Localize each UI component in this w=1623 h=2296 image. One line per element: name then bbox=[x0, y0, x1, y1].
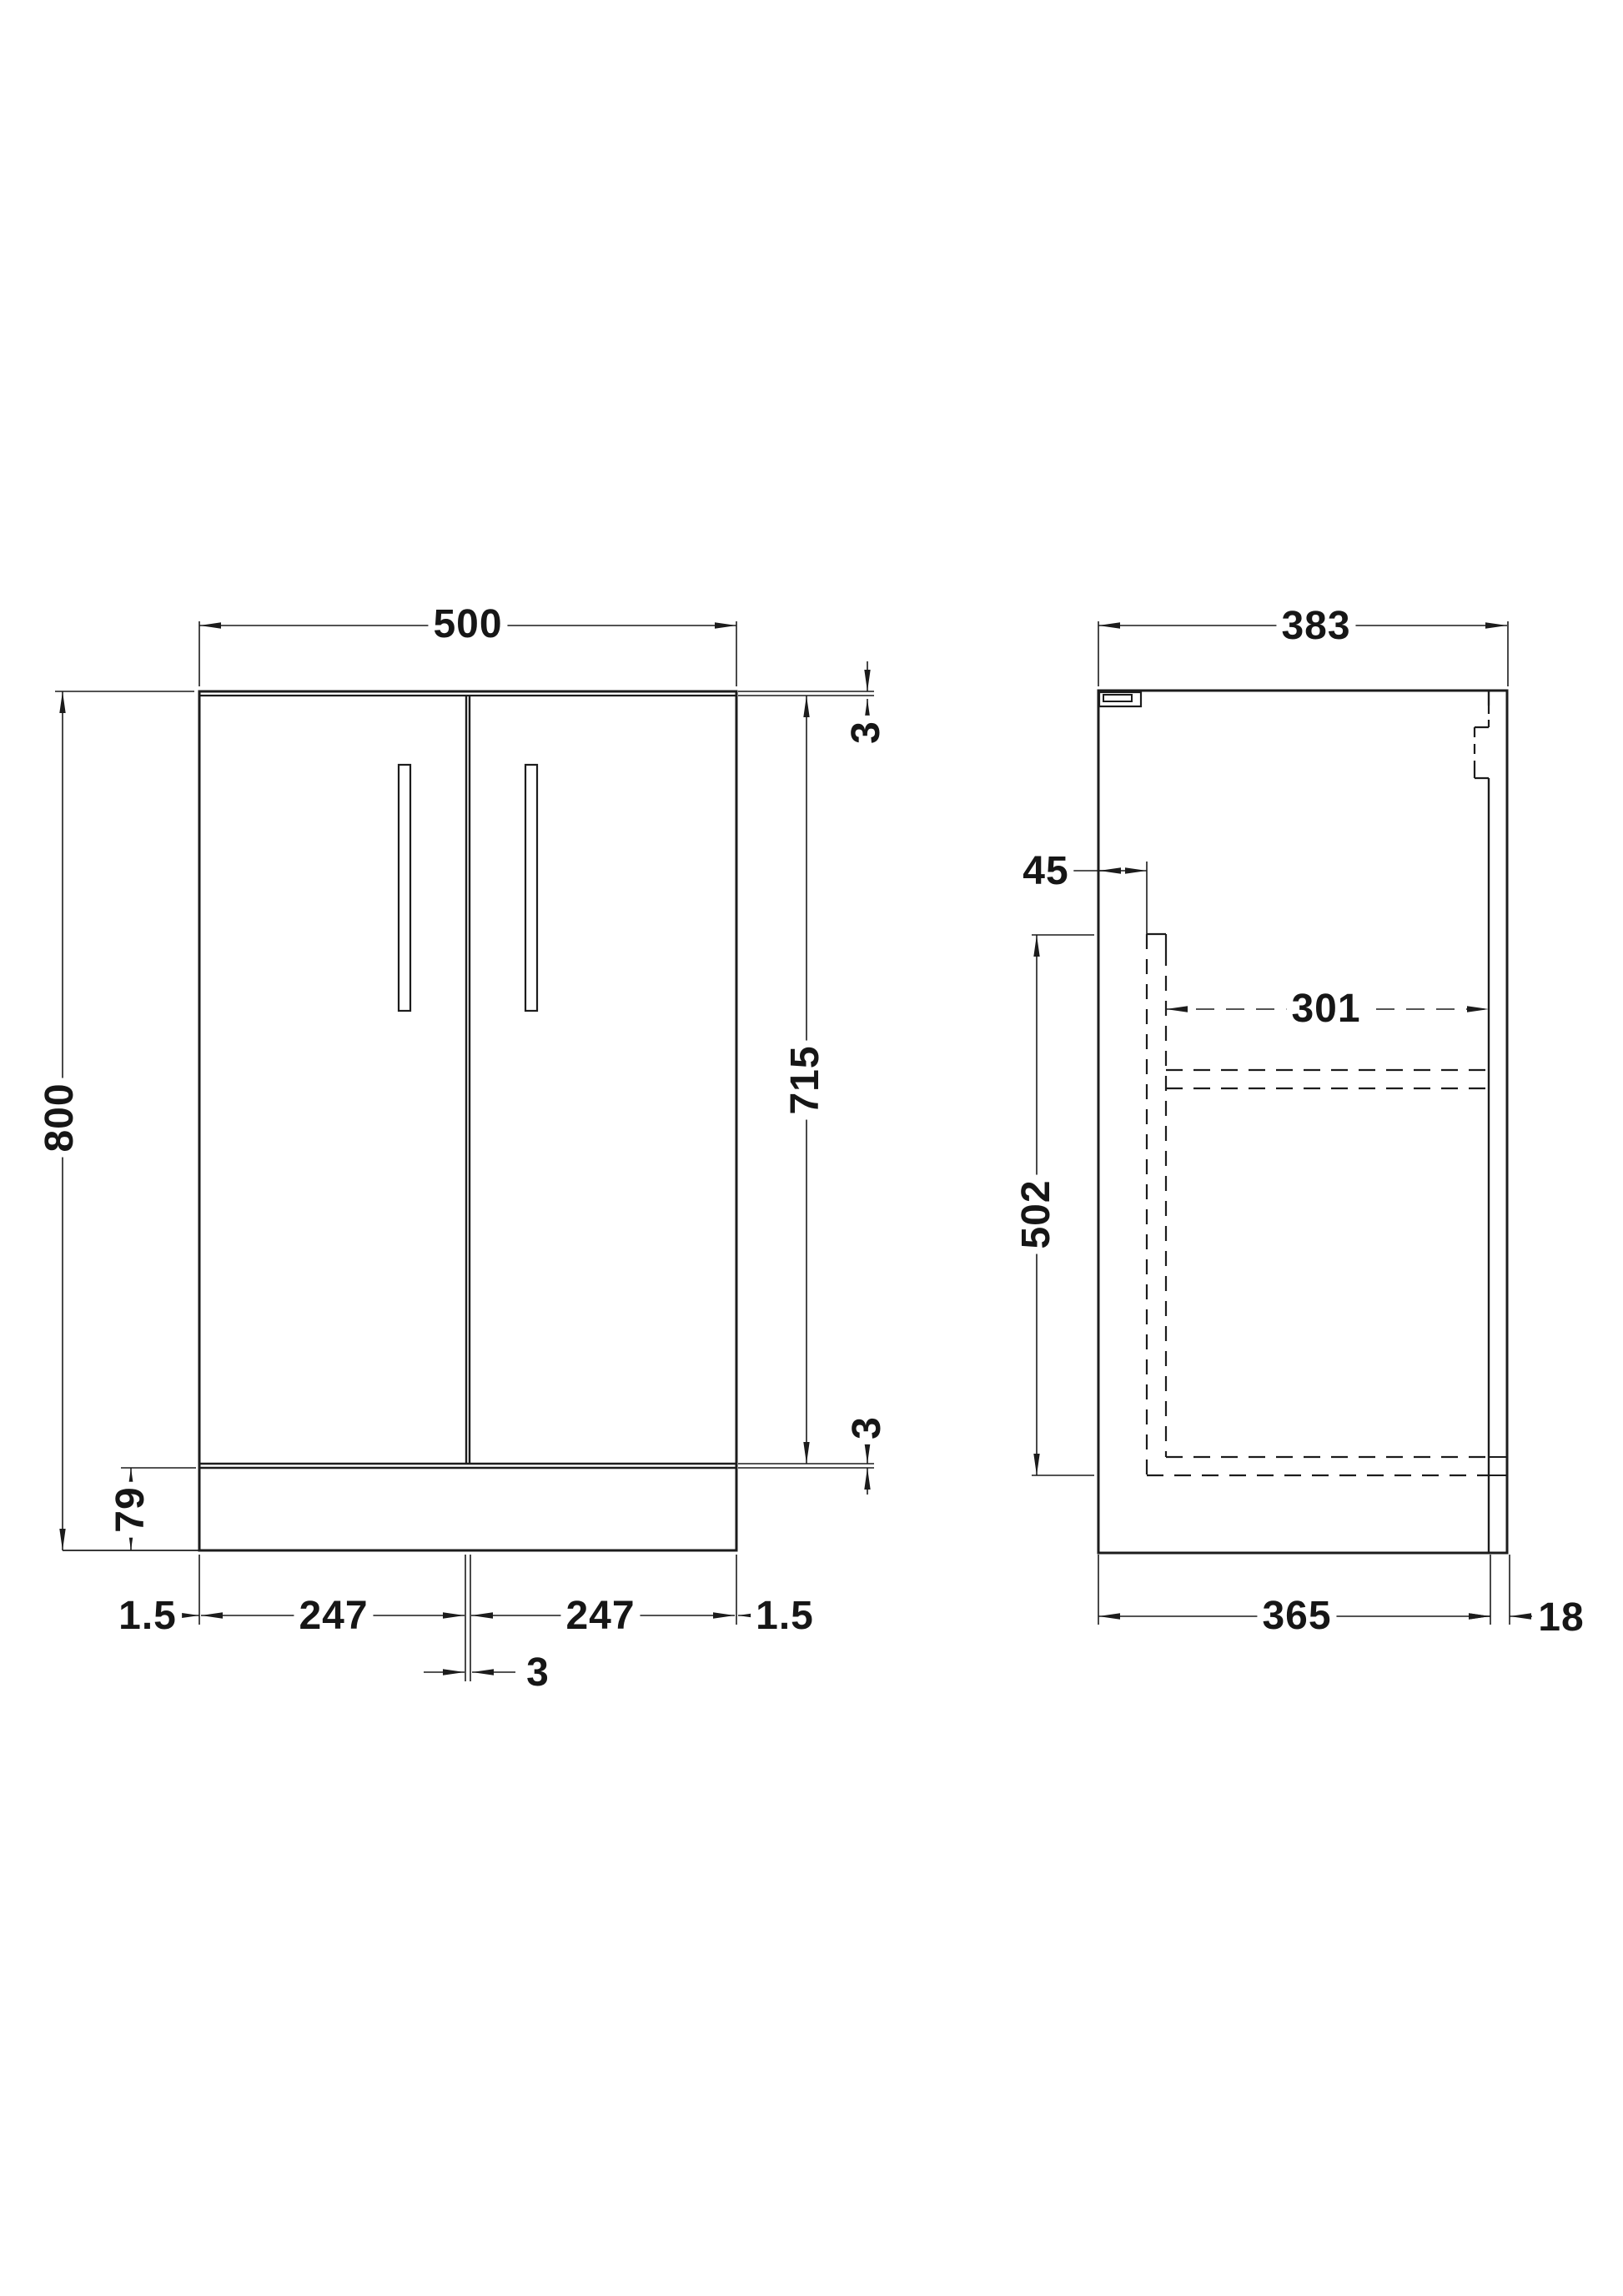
front-width-label: 500 bbox=[428, 605, 507, 645]
vanity-unit-drawing bbox=[0, 0, 1623, 2296]
side-back-rail-label: 18 bbox=[1533, 1598, 1589, 1638]
side-depth-label: 383 bbox=[1276, 606, 1355, 646]
front-plinth-label: 79 bbox=[111, 1481, 151, 1537]
right-door-handle bbox=[525, 765, 537, 1011]
technical-drawing-page: 500 800 715 3 3 79 1.5 247 247 1.5 3 383… bbox=[0, 0, 1623, 2296]
front-view-dimensions bbox=[55, 621, 874, 1681]
side-carcass-depth-label: 365 bbox=[1257, 1596, 1336, 1636]
side-internal-height-label: 502 bbox=[1017, 1174, 1057, 1254]
front-right-gap-label: 1.5 bbox=[751, 1596, 819, 1636]
side-internal-depth-label: 301 bbox=[1286, 989, 1365, 1029]
front-bottom-gap-label: 3 bbox=[847, 1411, 887, 1444]
front-door-height-label: 715 bbox=[786, 1040, 826, 1119]
front-left-door-label: 247 bbox=[294, 1596, 373, 1636]
side-view-dimensions bbox=[1032, 621, 1532, 1625]
side-outline bbox=[1098, 691, 1507, 1553]
wall-bracket-inner bbox=[1103, 695, 1132, 701]
left-door-handle bbox=[399, 765, 410, 1011]
front-right-door-label: 247 bbox=[560, 1596, 640, 1636]
side-view bbox=[1098, 691, 1507, 1553]
front-left-gap-label: 1.5 bbox=[113, 1596, 182, 1636]
side-front-inset-label: 45 bbox=[1018, 852, 1073, 892]
front-height-label: 800 bbox=[40, 1078, 80, 1157]
front-view bbox=[199, 691, 736, 1550]
front-top-gap-label: 3 bbox=[847, 716, 887, 749]
front-carcass-outline bbox=[199, 691, 736, 1550]
front-door-gap-label: 3 bbox=[521, 1653, 555, 1693]
